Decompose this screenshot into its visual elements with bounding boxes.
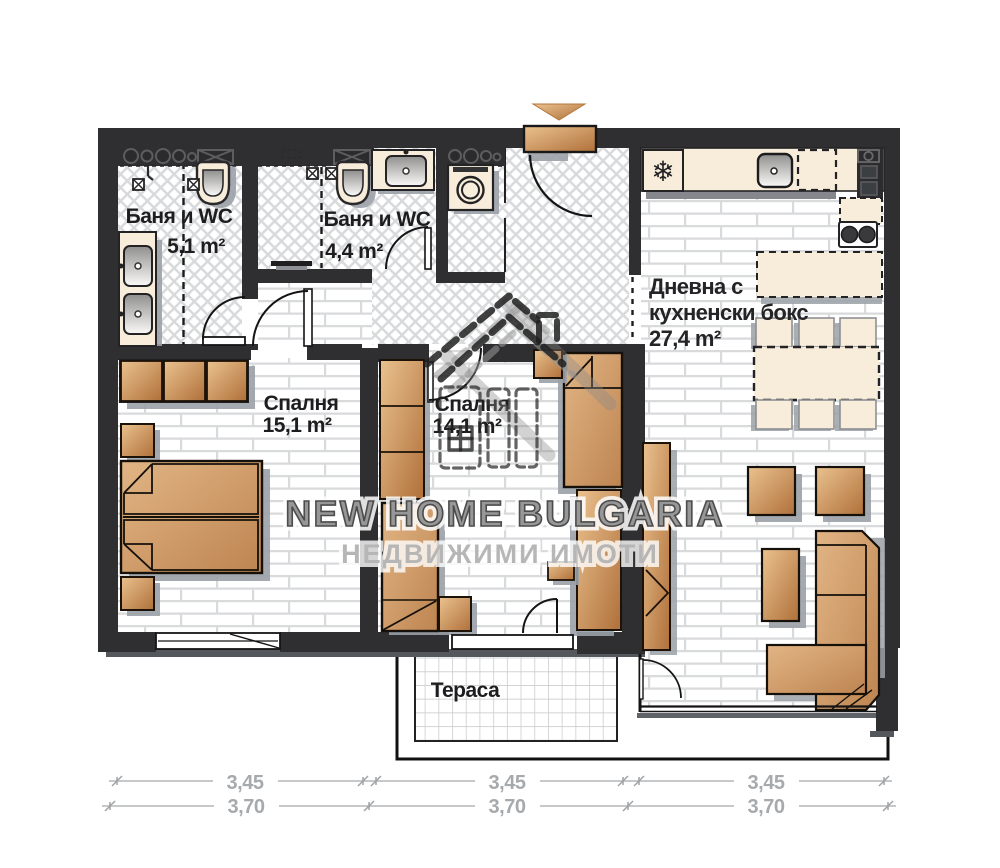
svg-text:Спалня: Спалня xyxy=(264,392,339,415)
svg-text:❄: ❄ xyxy=(651,156,674,187)
svg-text:4,4 m²: 4,4 m² xyxy=(325,240,383,263)
svg-text:кухненски бокс: кухненски бокс xyxy=(649,300,808,325)
svg-text:3,45: 3,45 xyxy=(227,772,264,794)
svg-text:NEW HOME BULGARIA: NEW HOME BULGARIA xyxy=(285,493,724,534)
svg-text:НЕДВИЖИМИ ИМОТИ: НЕДВИЖИМИ ИМОТИ xyxy=(341,539,659,569)
svg-text:Баня и WC: Баня и WC xyxy=(324,208,431,231)
svg-text:3,70: 3,70 xyxy=(748,796,785,818)
svg-text:Тераса: Тераса xyxy=(431,679,500,702)
svg-text:15,1 m²: 15,1 m² xyxy=(263,414,332,437)
svg-text:27,4 m²: 27,4 m² xyxy=(649,326,721,351)
svg-text:3,45: 3,45 xyxy=(489,772,526,794)
svg-text:3,70: 3,70 xyxy=(489,796,526,818)
svg-text:3,45: 3,45 xyxy=(748,772,785,794)
svg-text:Дневна с: Дневна с xyxy=(649,274,743,299)
svg-text:5,1 m²: 5,1 m² xyxy=(167,235,225,258)
svg-text:3,70: 3,70 xyxy=(228,796,265,818)
svg-text:Баня и WC: Баня и WC xyxy=(126,205,233,228)
